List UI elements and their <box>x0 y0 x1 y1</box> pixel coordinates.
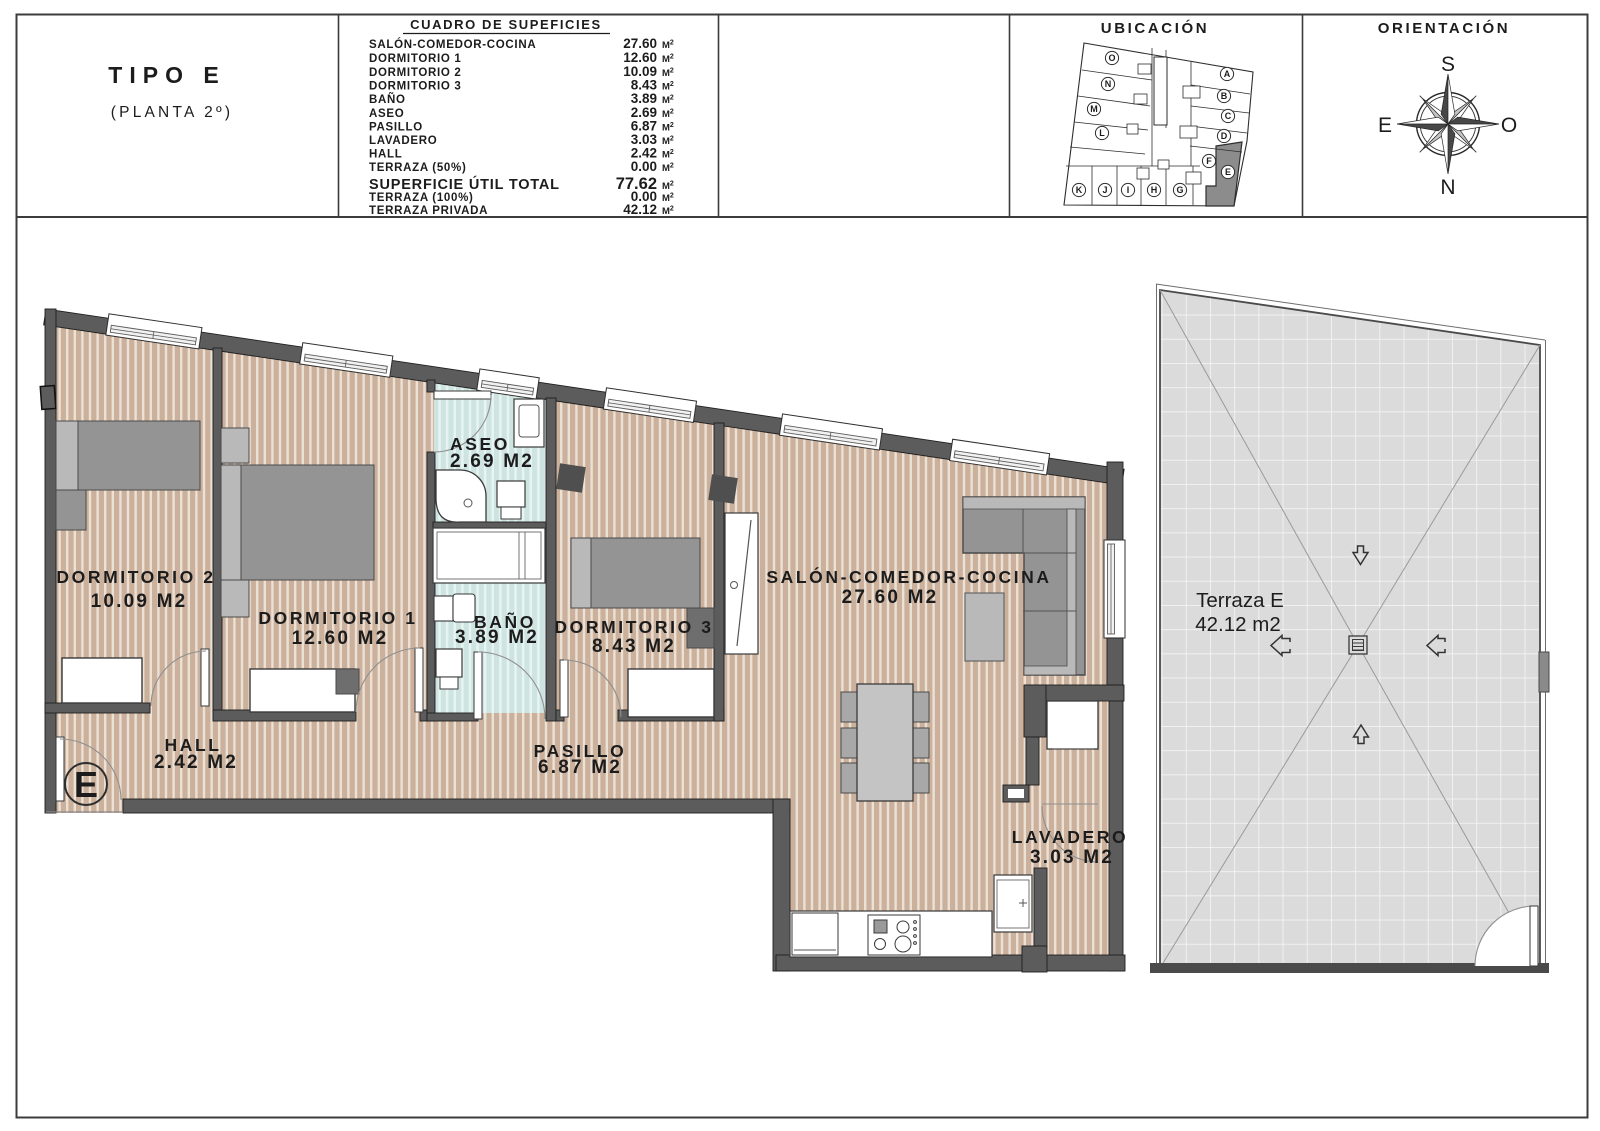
svg-text:PASILLO: PASILLO <box>369 122 423 134</box>
svg-text:DORMITORIO 3: DORMITORIO 3 <box>369 81 462 93</box>
svg-text:TERRAZA (50%): TERRAZA (50%) <box>369 162 466 174</box>
svg-text:DORMITORIO 2: DORMITORIO 2 <box>369 67 462 79</box>
svg-text:SUPERFICIE ÚTIL TOTAL: SUPERFICIE ÚTIL TOTAL <box>369 175 560 193</box>
svg-text:12.60: 12.60 <box>623 50 657 65</box>
svg-text:K: K <box>1076 185 1083 195</box>
svg-text:DORMITORIO 1: DORMITORIO 1 <box>258 608 417 628</box>
svg-text:DORMITORIO 2: DORMITORIO 2 <box>56 567 215 587</box>
svg-text:N: N <box>1105 79 1112 89</box>
svg-text:G: G <box>1176 185 1183 195</box>
svg-text:6.87 M2: 6.87 M2 <box>538 757 622 778</box>
svg-text:2.42 M2: 2.42 M2 <box>154 752 238 773</box>
svg-text:I: I <box>1127 185 1130 195</box>
svg-text:42.12 m2: 42.12 m2 <box>1195 613 1280 636</box>
svg-text:12.60 M2: 12.60 M2 <box>292 628 389 649</box>
svg-text:S: S <box>1441 53 1455 76</box>
svg-text:ASEO: ASEO <box>369 108 404 120</box>
svg-text:TERRAZA (100%): TERRAZA (100%) <box>369 192 474 204</box>
svg-text:LAVADERO: LAVADERO <box>1012 827 1128 847</box>
svg-text:J: J <box>1102 185 1107 195</box>
svg-text:42.12: 42.12 <box>623 202 657 217</box>
svg-text:C: C <box>1225 111 1232 121</box>
svg-text:O: O <box>1108 53 1115 63</box>
svg-text:CUADRO DE SUPEFICIES: CUADRO DE SUPEFICIES <box>410 17 602 32</box>
svg-text:M: M <box>1090 104 1098 114</box>
svg-text:3.89 M2: 3.89 M2 <box>455 627 539 648</box>
svg-text:27.60 M2: 27.60 M2 <box>842 587 939 608</box>
svg-text:10.09 M2: 10.09 M2 <box>91 591 188 612</box>
svg-text:3.03 M2: 3.03 M2 <box>1030 847 1114 868</box>
svg-text:Terraza E: Terraza E <box>1196 589 1284 612</box>
svg-text:TERRAZA PRIVADA: TERRAZA PRIVADA <box>369 205 488 217</box>
svg-text:HALL: HALL <box>369 149 402 161</box>
svg-text:SALÓN-COMEDOR-COCINA: SALÓN-COMEDOR-COCINA <box>766 566 1051 587</box>
svg-text:E: E <box>1225 167 1231 177</box>
svg-text:D: D <box>1221 131 1228 141</box>
svg-text:H: H <box>1151 185 1158 195</box>
svg-text:SALÓN-COMEDOR-COCINA: SALÓN-COMEDOR-COCINA <box>369 38 536 51</box>
svg-text:(PLANTA 2º): (PLANTA 2º) <box>111 104 233 121</box>
svg-text:BAÑO: BAÑO <box>369 93 406 106</box>
svg-text:B: B <box>1221 91 1228 101</box>
svg-text:A: A <box>1224 69 1231 79</box>
svg-text:L: L <box>1099 128 1105 138</box>
svg-text:F: F <box>1206 156 1212 166</box>
svg-text:E: E <box>74 764 98 805</box>
svg-text:0.00: 0.00 <box>631 159 657 174</box>
svg-text:UBICACIÓN: UBICACIÓN <box>1101 19 1209 37</box>
svg-text:LAVADERO: LAVADERO <box>369 135 437 147</box>
svg-text:8.43 M2: 8.43 M2 <box>592 636 676 657</box>
svg-text:N: N <box>1440 176 1455 199</box>
svg-text:DORMITORIO 1: DORMITORIO 1 <box>369 53 462 65</box>
svg-text:27.60: 27.60 <box>623 36 657 51</box>
svg-text:TIPO E: TIPO E <box>108 62 225 88</box>
svg-text:2.69 M2: 2.69 M2 <box>450 451 534 472</box>
svg-text:3.89: 3.89 <box>631 91 657 106</box>
svg-text:ORIENTACIÓN: ORIENTACIÓN <box>1378 19 1511 37</box>
svg-text:E: E <box>1378 114 1392 137</box>
svg-text:DORMITORIO 3: DORMITORIO 3 <box>554 617 713 637</box>
svg-text:O: O <box>1501 114 1517 137</box>
